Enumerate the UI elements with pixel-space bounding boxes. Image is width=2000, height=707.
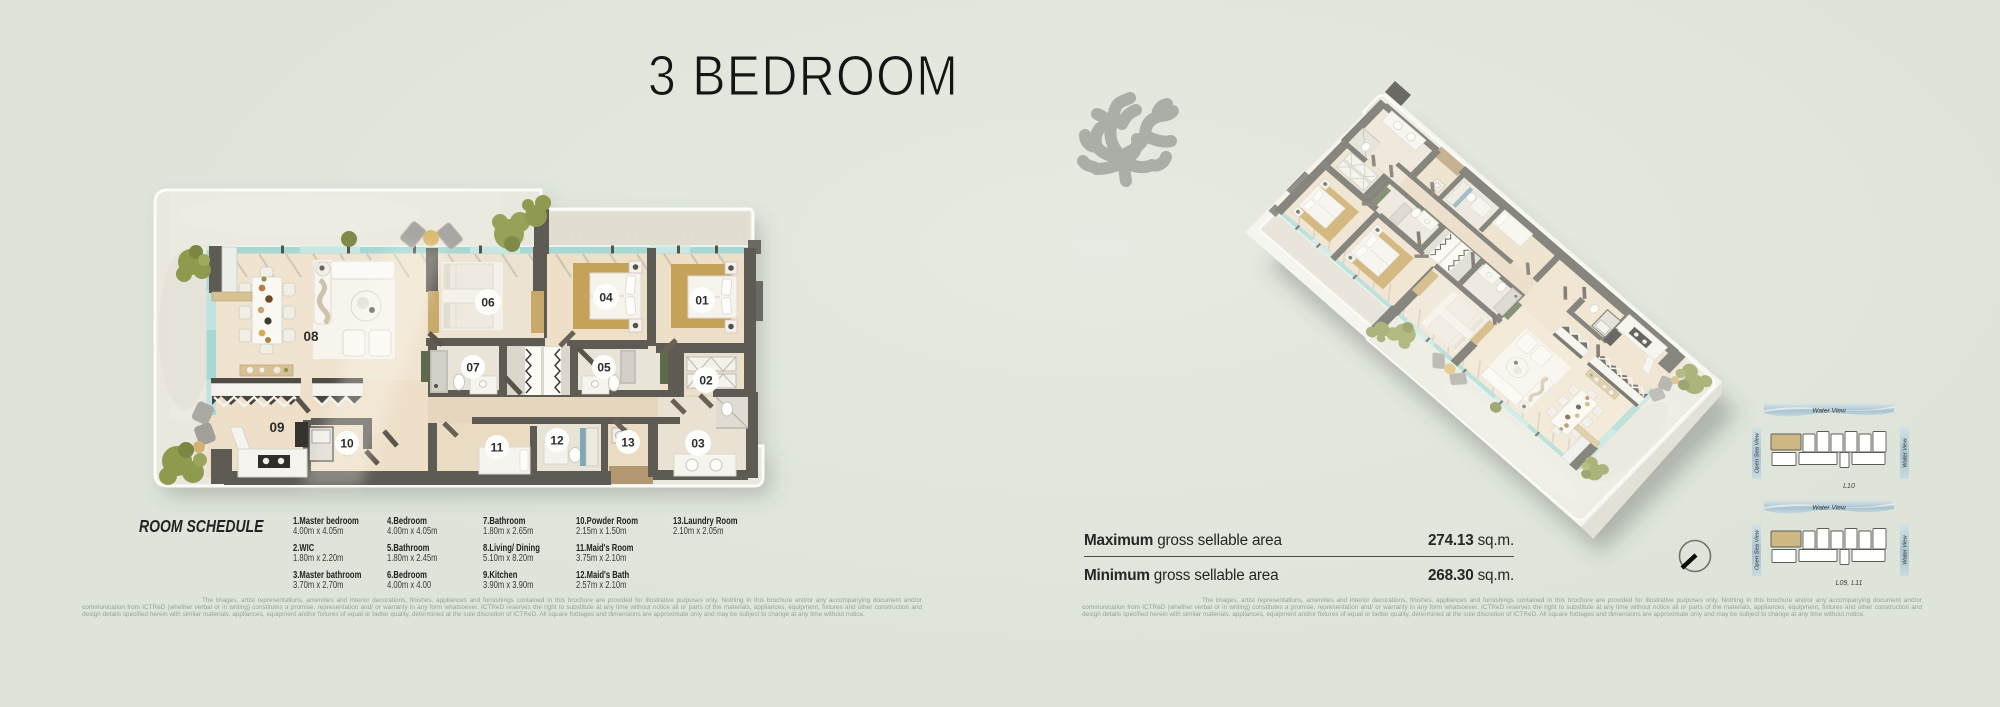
svg-text:11: 11 — [491, 441, 504, 455]
svg-text:02: 02 — [699, 374, 713, 388]
svg-text:08: 08 — [303, 329, 319, 344]
svg-text:10: 10 — [340, 437, 354, 451]
svg-text:L09, L11: L09, L11 — [1836, 580, 1863, 587]
svg-text:L10: L10 — [1843, 483, 1855, 490]
svg-text:Open Sea View: Open Sea View — [1755, 432, 1761, 473]
svg-text:12: 12 — [550, 434, 564, 448]
svg-text:Water View: Water View — [1903, 437, 1909, 467]
svg-text:07: 07 — [466, 361, 480, 375]
svg-text:Water View: Water View — [1812, 408, 1847, 415]
svg-text:03: 03 — [691, 437, 705, 451]
svg-text:04: 04 — [599, 291, 613, 305]
svg-text:06: 06 — [481, 296, 495, 310]
svg-text:01: 01 — [695, 294, 709, 308]
svg-text:09: 09 — [269, 420, 284, 435]
svg-text:13: 13 — [621, 436, 635, 450]
svg-text:05: 05 — [597, 361, 611, 375]
svg-text:Open Sea View: Open Sea View — [1755, 529, 1761, 570]
svg-text:Water View: Water View — [1903, 534, 1909, 564]
svg-text:Water View: Water View — [1812, 505, 1847, 512]
